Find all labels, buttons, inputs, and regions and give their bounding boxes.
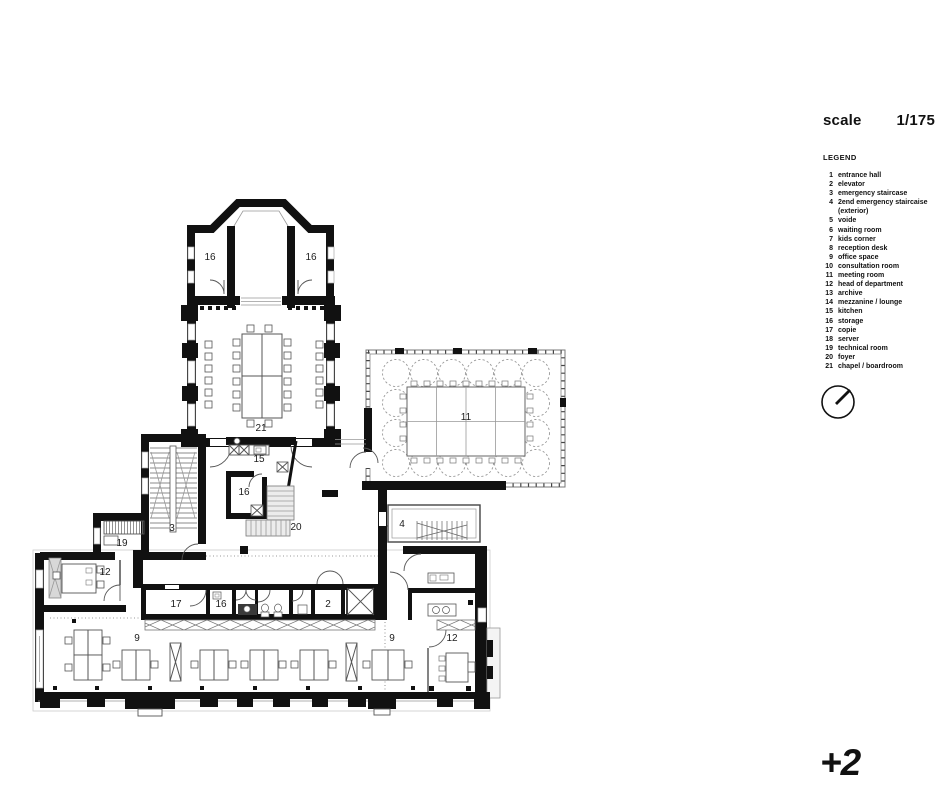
room-label-storage-foyer: 16	[238, 487, 250, 498]
bottom-facade	[38, 692, 490, 716]
legend-item: 3emergency staircase	[823, 189, 935, 198]
mezzanine-edge-hatch	[145, 620, 375, 630]
legend-item: 18server	[823, 335, 935, 344]
legend-item: 11meeting room	[823, 271, 935, 280]
legend-item: 42end emergency staircaise (exterior)	[823, 198, 935, 216]
room-label-storage-strip: 16	[215, 599, 227, 610]
floor-level-indicator: +2	[820, 742, 860, 784]
legend-item: 19technical room	[823, 344, 935, 353]
wc-fixtures	[236, 590, 307, 617]
room-label-copie: 17	[170, 599, 182, 610]
legend-item: 21chapel / boardroom	[823, 362, 935, 371]
foyer-column-block	[240, 546, 248, 554]
legend-title: LEGEND	[823, 153, 935, 162]
dentil-row	[192, 306, 332, 310]
drawing-sheet: 16 16	[0, 0, 936, 800]
desk-row	[113, 650, 412, 680]
legend-item: 15kitchen	[823, 307, 935, 316]
room-label-foyer: 20	[290, 522, 302, 533]
room-3-emergency-staircase: 3	[141, 434, 206, 560]
exterior-attachment	[487, 628, 500, 698]
boardroom-table	[242, 334, 282, 418]
mezzanine-stair	[246, 486, 294, 536]
elevator-shaft	[347, 588, 374, 615]
room-label-elevator: 2	[325, 599, 331, 610]
legend-items: 1entrance hall2elevator3emergency stairc…	[823, 171, 935, 371]
legend-item: 20foyer	[823, 353, 935, 362]
room-label-exterior-stair: 4	[399, 519, 405, 530]
room-label-head-dept-left: 12	[99, 567, 111, 578]
legend-item: 5voide	[823, 216, 935, 225]
room-label-office-right: 9	[389, 633, 395, 644]
legend-item: 16storage	[823, 317, 935, 326]
legend-item: 10consultation room	[823, 262, 935, 271]
room-label-head-dept-right: 12	[446, 633, 458, 644]
chapel-apse: 16 16	[187, 203, 335, 312]
legend-item: 7kids corner	[823, 235, 935, 244]
room-label-meeting-room: 11	[461, 412, 472, 423]
legend-item: 14mezzanine / lounge	[823, 298, 935, 307]
right-section: 9 12	[385, 553, 500, 703]
room-label-kitchen: 15	[253, 454, 265, 465]
room-label-storage-tower-left: 16	[204, 252, 216, 263]
legend-item: 1entrance hall	[823, 171, 935, 180]
column	[234, 438, 240, 444]
legend-item: 2elevator	[823, 180, 935, 189]
scale-value: 1/175	[896, 112, 935, 129]
room-label-technical-room: 19	[116, 538, 128, 549]
legend-item: 13archive	[823, 289, 935, 298]
legend-item: 6waiting room	[823, 226, 935, 235]
room-label-emergency-staircase: 3	[169, 523, 175, 534]
scale-row: scale 1/175	[823, 112, 935, 129]
head-of-department-desk-right	[439, 653, 475, 682]
room-11-meeting-room: 11	[335, 348, 566, 490]
technical-equipment	[104, 521, 144, 534]
legend-item: 8reception desk	[823, 244, 935, 253]
legend-item: 12head of department	[823, 280, 935, 289]
scale-label: scale	[823, 112, 862, 129]
legend-item: 17copie	[823, 326, 935, 335]
room-label-office-left: 9	[134, 633, 140, 644]
north-arrow-icon	[822, 386, 854, 418]
legend-panel: scale 1/175 LEGEND 1entrance hall2elevat…	[823, 112, 935, 371]
desk-group-vertical	[65, 630, 110, 680]
room-label-storage-tower-right: 16	[305, 252, 317, 263]
room-label-chapel-boardroom: 21	[255, 423, 267, 434]
central-strip: 17 16 2	[141, 571, 382, 630]
foyer-bench	[322, 490, 338, 497]
legend-item: 9office space	[823, 253, 935, 262]
floor-plan: 16 16	[0, 0, 936, 800]
